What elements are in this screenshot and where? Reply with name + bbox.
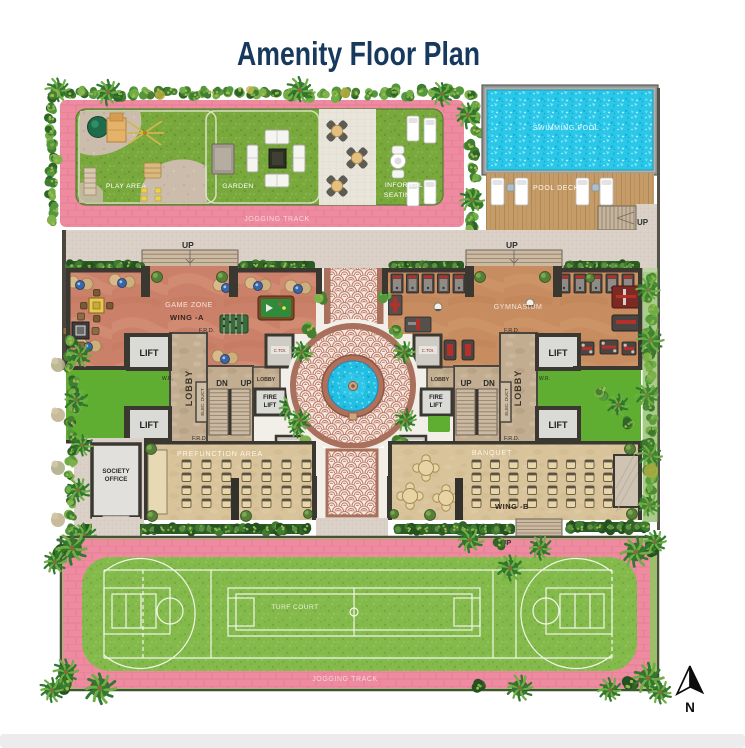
svg-text:LIFT: LIFT (549, 348, 568, 358)
svg-text:LIFT: LIFT (140, 348, 159, 358)
svg-text:INFORMAL: INFORMAL (385, 182, 423, 189)
svg-text:BANQUET: BANQUET (472, 448, 512, 457)
svg-text:N: N (685, 700, 695, 715)
svg-text:W.R.: W.R. (539, 376, 550, 382)
svg-text:LOBBY: LOBBY (431, 377, 450, 383)
svg-text:LIFT: LIFT (430, 403, 443, 409)
svg-text:FIRE: FIRE (429, 395, 443, 401)
svg-text:DN: DN (216, 379, 228, 388)
svg-text:SWIMMING POOL: SWIMMING POOL (533, 125, 600, 132)
svg-text:WING -A: WING -A (170, 313, 204, 322)
svg-text:LOBBY: LOBBY (513, 370, 523, 407)
svg-text:SOCIETY: SOCIETY (102, 468, 130, 475)
svg-text:JOGGING TRACK: JOGGING TRACK (312, 676, 378, 683)
svg-text:GARDEN: GARDEN (222, 183, 253, 190)
svg-text:GYMNASIUM: GYMNASIUM (494, 302, 543, 311)
svg-text:PREFUNCTION AREA: PREFUNCTION AREA (177, 449, 263, 458)
svg-text:LIFT: LIFT (140, 420, 159, 430)
svg-text:GAME ZONE: GAME ZONE (165, 300, 213, 309)
svg-text:DN: DN (483, 379, 495, 388)
svg-text:UP: UP (460, 379, 472, 388)
svg-text:POOL DECK: POOL DECK (533, 185, 579, 192)
svg-text:SEATING: SEATING (384, 192, 416, 199)
svg-text:UP: UP (182, 240, 194, 250)
svg-text:JOGGING TRACK: JOGGING TRACK (244, 216, 310, 223)
svg-text:LOBBY: LOBBY (184, 370, 194, 407)
svg-text:ELEC. DUCT: ELEC. DUCT (504, 388, 509, 416)
svg-text:FIRE: FIRE (263, 395, 277, 401)
svg-text:TURF COURT: TURF COURT (271, 604, 318, 611)
svg-text:F.R.D.: F.R.D. (199, 328, 215, 334)
svg-text:LIFT: LIFT (549, 420, 568, 430)
svg-text:W.R.: W.R. (162, 376, 173, 382)
svg-text:C.TOI.: C.TOI. (422, 348, 435, 353)
svg-text:UP: UP (506, 240, 518, 250)
svg-text:LIFT: LIFT (264, 403, 277, 409)
svg-text:UP: UP (637, 218, 649, 227)
svg-text:LOBBY: LOBBY (257, 377, 276, 383)
svg-text:C.TOI.: C.TOI. (274, 348, 287, 353)
svg-text:PLAY AREA: PLAY AREA (106, 183, 146, 190)
svg-text:WING -B: WING -B (495, 502, 529, 511)
svg-text:Amenity Floor Plan: Amenity Floor Plan (237, 35, 480, 72)
svg-text:ELEC. DUCT: ELEC. DUCT (200, 388, 205, 416)
svg-text:F.R.D.: F.R.D. (504, 328, 520, 334)
svg-text:UP: UP (240, 379, 252, 388)
svg-text:OFFICE: OFFICE (105, 476, 128, 483)
